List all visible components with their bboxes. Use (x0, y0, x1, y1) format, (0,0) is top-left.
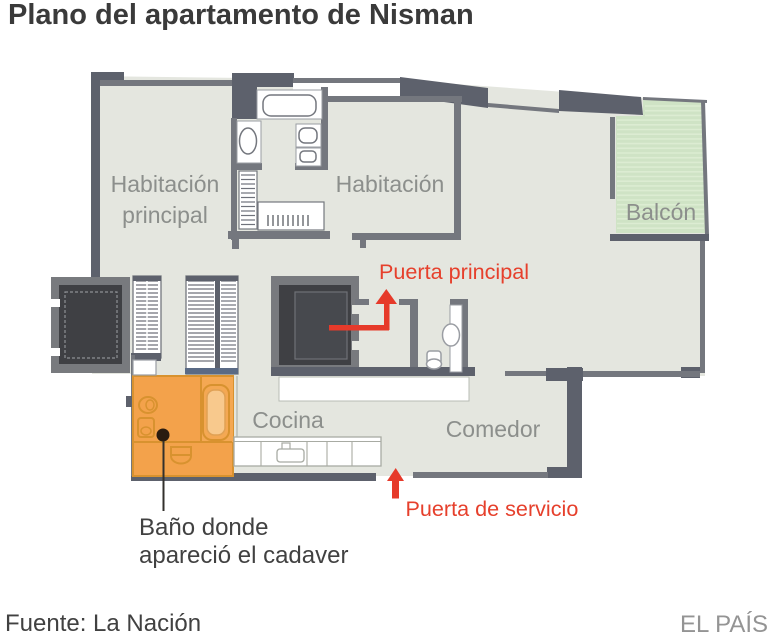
svg-text:Puerta de servicio: Puerta de servicio (406, 496, 579, 521)
svg-text:Balcón: Balcón (626, 199, 696, 225)
svg-text:Fuente: La Nación: Fuente: La Nación (5, 610, 201, 637)
svg-text:Puerta principal: Puerta principal (379, 259, 529, 284)
svg-text:Cocina: Cocina (252, 407, 324, 433)
svg-text:EL PAÍS: EL PAÍS (680, 611, 768, 638)
svg-text:Baño donde: Baño donde (139, 514, 268, 541)
svg-text:principal: principal (122, 202, 208, 228)
svg-text:Habitación: Habitación (111, 171, 220, 197)
svg-text:Comedor: Comedor (446, 416, 541, 442)
svg-text:Plano del apartamento de Nisma: Plano del apartamento de Nisman (8, 0, 474, 31)
svg-text:apareció el cadaver: apareció el cadaver (139, 542, 348, 569)
svg-text:Habitación: Habitación (336, 171, 445, 197)
